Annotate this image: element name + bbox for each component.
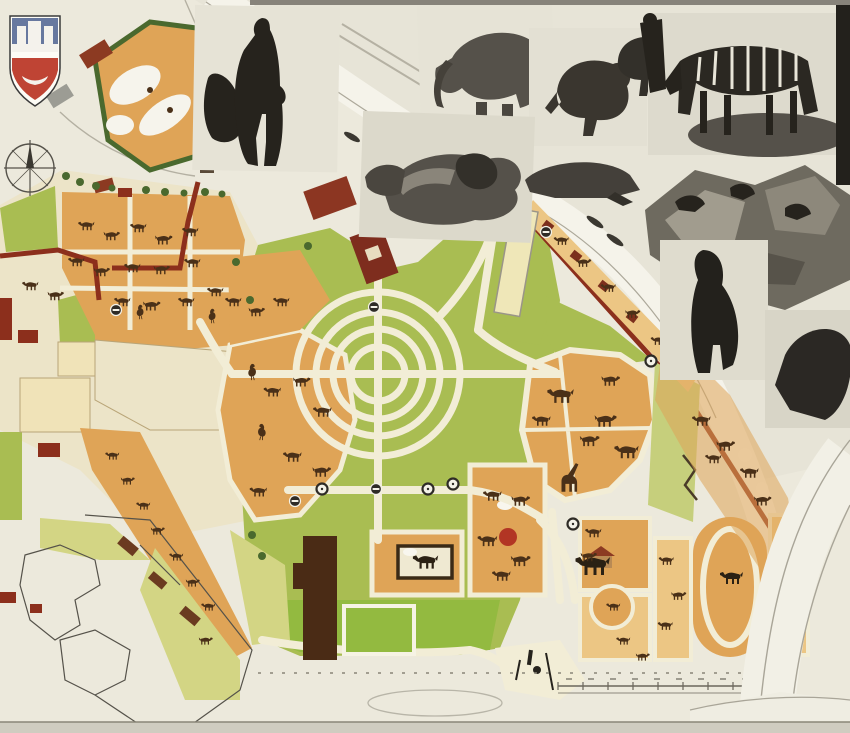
zoo-map-svg (0, 0, 850, 733)
photo-edge-dark (836, 0, 850, 185)
sports-field (344, 606, 414, 654)
map-marker (317, 484, 328, 495)
map-marker (448, 479, 459, 490)
map-marker (541, 227, 552, 238)
map-marker (423, 484, 434, 495)
map-marker (369, 302, 380, 313)
top-border-strip (250, 0, 850, 5)
standing-black-bear-photo (660, 240, 768, 380)
zebra-with-keeper-photo (640, 13, 848, 157)
round-pond (499, 528, 517, 546)
standing-bear-photo (192, 5, 340, 173)
map-marker (371, 484, 382, 495)
map-marker (646, 356, 657, 367)
map-marker (568, 519, 579, 530)
zoo-map-page (0, 0, 850, 733)
brown-bear-photo (765, 310, 850, 428)
map-marker (111, 305, 122, 316)
bottom-border-strip (0, 722, 850, 733)
map-marker (290, 496, 301, 507)
lions-photo (359, 111, 535, 243)
